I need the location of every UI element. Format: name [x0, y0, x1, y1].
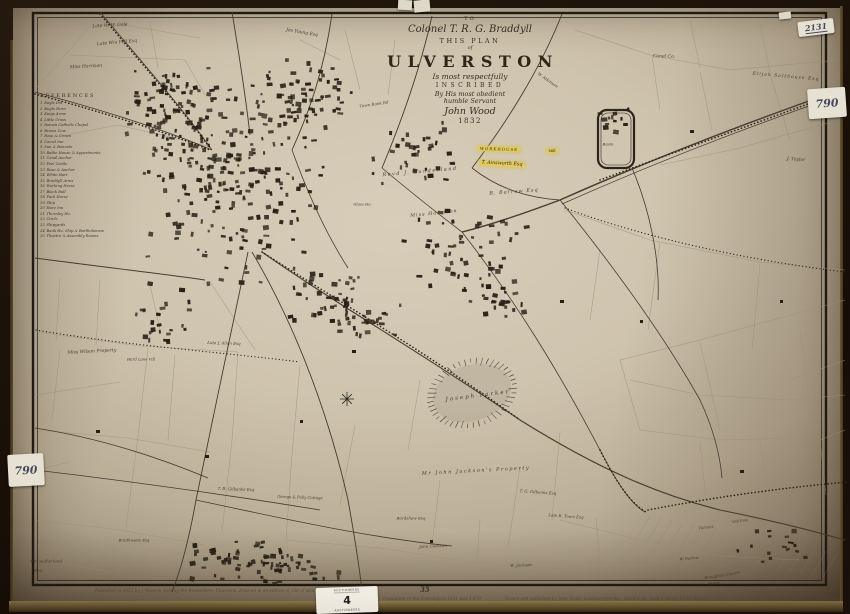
- map-title: ULVERSTON: [370, 53, 570, 71]
- cartouche-year: 1832: [370, 118, 570, 126]
- cartouche-of: of: [370, 46, 570, 52]
- map-label: T. Ainsworth Esq: [479, 160, 524, 167]
- framed-map-photo: Late W. W. GaleLate Wm Fell EsqMiss Harr…: [0, 0, 850, 614]
- map-label: Canal Co.: [653, 54, 675, 60]
- pencil-note: 35: [420, 585, 430, 594]
- paper-tab: [779, 11, 792, 19]
- paper-tab: [398, 0, 413, 10]
- map-label: Jas Young Esq: [286, 28, 318, 38]
- sticker-code-value: 2131: [804, 21, 827, 35]
- map-label: Late J. Allan Esq: [207, 340, 240, 346]
- cartouche-respect: Is most respectfully: [370, 73, 570, 81]
- map-label: Miss Harrison: [410, 209, 458, 219]
- map-label: Propy: [708, 580, 720, 587]
- map-label: Bardshaw Esq: [396, 516, 425, 521]
- sticker-price-right: 790: [807, 87, 847, 120]
- reference-item: 25 Theatre & Assembly Rooms: [40, 234, 132, 240]
- map-label: Late Wm Fell Esq: [97, 39, 138, 47]
- imprint-drawn: Drawn and published by John Wood, Landsu…: [505, 596, 708, 601]
- lot-number: 4: [343, 595, 351, 606]
- map-label: B. Barrow Esq: [489, 187, 539, 196]
- map-label: WORKHOUSE: [478, 146, 520, 152]
- map-label: Turners: [698, 524, 714, 531]
- map-label: W. Jackson: [510, 562, 532, 568]
- references-heading: REFERENCES: [40, 93, 132, 99]
- map-label: Hard Lane Vill: [127, 357, 155, 362]
- map-label: Elijah Salthouse Esq: [752, 72, 819, 83]
- map-label: Glass Ho: [353, 202, 370, 207]
- cartouche-signature: John Wood: [370, 107, 570, 117]
- map-label: Mill: [547, 149, 558, 153]
- imprint-published: Published in 1832 by J. Wood & Sold by t…: [95, 588, 341, 593]
- cartouche-to: TO: [370, 17, 570, 23]
- references-list: 1 Eagle Inn2 Bugle Horn3 Kings Arms4 Lit…: [40, 101, 132, 240]
- map-label: John Cookson: [419, 543, 447, 549]
- map-label: T. B. Gilbanks Esq: [218, 486, 255, 492]
- imprint-population: Population of the Township in 1831 was 5…: [383, 596, 481, 601]
- sticker-price-left: 790: [7, 453, 45, 487]
- map-label: Late R. Town Esq: [548, 512, 584, 519]
- cartouche-dedicatee: Colonel T. R. G. Braddyll: [370, 24, 570, 35]
- map-label: Broughton Church: [704, 570, 740, 581]
- map-label: Basin: [602, 142, 613, 147]
- map-label: George & Polly Cottage: [277, 494, 323, 501]
- map-label: T. G. Gilbanks Esq: [519, 488, 556, 496]
- cartouche-inscribed: INSCRIBED: [370, 83, 570, 90]
- map-label: Late W. W. Gale: [92, 23, 128, 30]
- lot-sticker-footer: AUCTIONEERS: [334, 608, 360, 613]
- paper-tab: [414, 0, 431, 13]
- map-label: Joseph Parker: [445, 389, 510, 403]
- map-label: Miss Harrison: [70, 64, 103, 71]
- map-label: Revd J. Sunderland: [382, 166, 458, 179]
- title-cartouche: TO Colonel T. R. G. Braddyll THIS PLAN o…: [370, 17, 570, 126]
- map-label: Braithwaite Esq: [119, 538, 150, 543]
- imprint-engraved: Engraved by T. Murphy, Liverpool: [768, 596, 840, 601]
- cartouche-humble: humble Servant: [370, 98, 570, 105]
- map-label: Esq: [34, 568, 42, 573]
- map-label: Wm Sutherland: [30, 559, 62, 564]
- map-label: W. Barlow: [679, 555, 699, 562]
- references-panel: REFERENCES 1 Eagle Inn2 Bugle Horn3 King…: [40, 93, 132, 240]
- map-label: Mill Dam: [732, 518, 748, 524]
- sticker-price-left-value: 790: [14, 463, 38, 477]
- lot-sticker: AUCTIONEERS 4 AUCTIONEERS: [316, 586, 379, 614]
- lot-sticker-header: AUCTIONEERS: [334, 588, 360, 594]
- map-label: J. Taylor: [787, 157, 806, 163]
- sticker-price-right-value: 790: [815, 96, 839, 111]
- map-label: Miss Wilson Property: [67, 348, 116, 356]
- map-label: Mr John Jackson's Property: [422, 465, 531, 477]
